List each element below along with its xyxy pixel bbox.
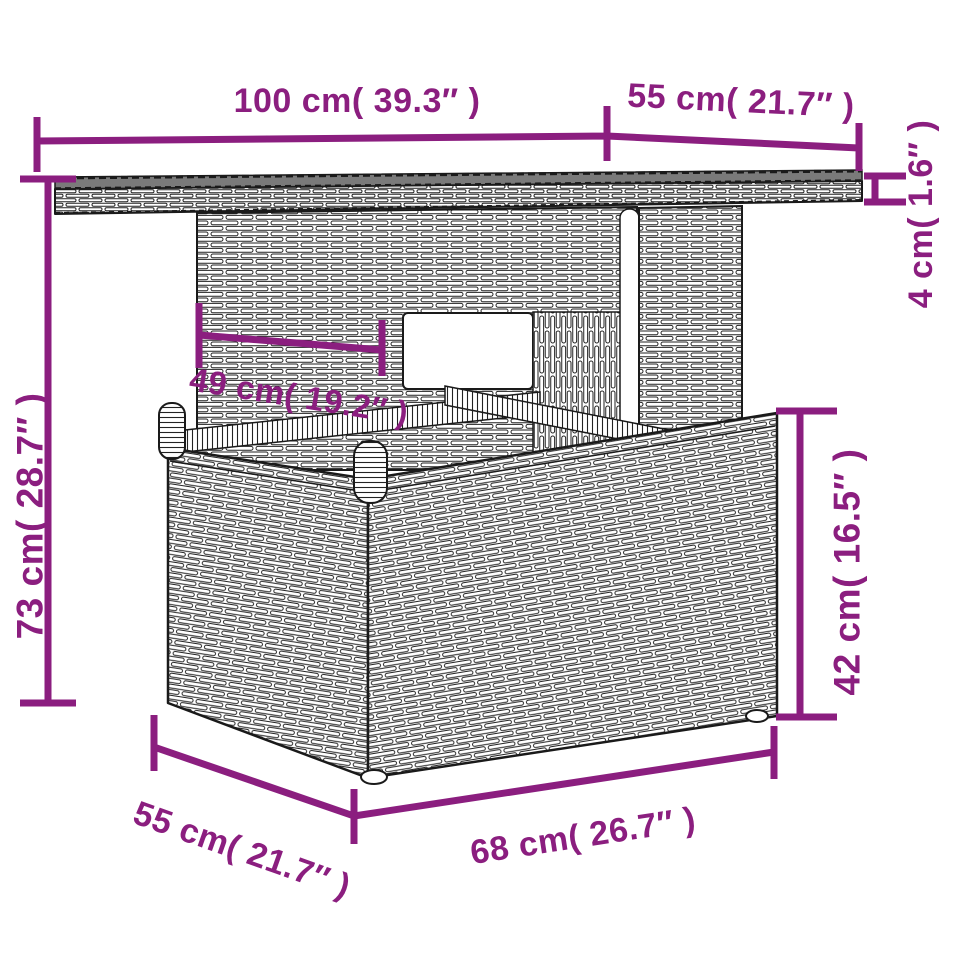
pedestal-corner-post — [620, 209, 639, 457]
dimension-label-base-width: 68 cm( 26.7″ ) — [468, 800, 699, 872]
dimension-label-top-width: 100 cm( 39.3″ ) — [234, 82, 481, 120]
table-illustration — [55, 170, 862, 784]
diagram-canvas: 100 cm( 39.3″ ) 55 cm( 21.7″ ) 4 cm( 1.6… — [0, 0, 955, 955]
base-front-corner-post — [354, 441, 387, 503]
dimension-label-base-depth: 55 cm( 21.7″ ) — [128, 794, 355, 906]
base-left-face — [168, 448, 368, 778]
dimension-label-total-height: 73 cm( 28.7″ ) — [10, 393, 51, 640]
base-foot-front — [361, 770, 387, 784]
dimension-base-height: 42 cm( 16.5″ ) — [776, 411, 868, 717]
base-foot-right — [746, 710, 768, 722]
dimension-label-top-thickness: 4 cm( 1.6″ ) — [902, 120, 940, 309]
base-back-corner-post — [159, 403, 185, 459]
dimension-top-depth: 55 cm( 21.7″ ) — [607, 77, 859, 171]
dimension-line-top-depth — [607, 123, 859, 171]
dimension-top-width: 100 cm( 39.3″ ) — [37, 82, 607, 172]
dimension-total-height: 73 cm( 28.7″ ) — [10, 179, 77, 703]
dimension-label-base-height: 42 cm( 16.5″ ) — [827, 449, 868, 696]
dimension-diagram: 100 cm( 39.3″ ) 55 cm( 21.7″ ) 4 cm( 1.6… — [0, 0, 955, 955]
dimension-line-top-thickness — [864, 176, 906, 202]
dimension-top-thickness: 4 cm( 1.6″ ) — [864, 120, 940, 309]
pedestal-opening — [403, 313, 533, 389]
pedestal-right-leg — [639, 206, 742, 455]
dimension-label-top-depth: 55 cm( 21.7″ ) — [627, 77, 856, 126]
